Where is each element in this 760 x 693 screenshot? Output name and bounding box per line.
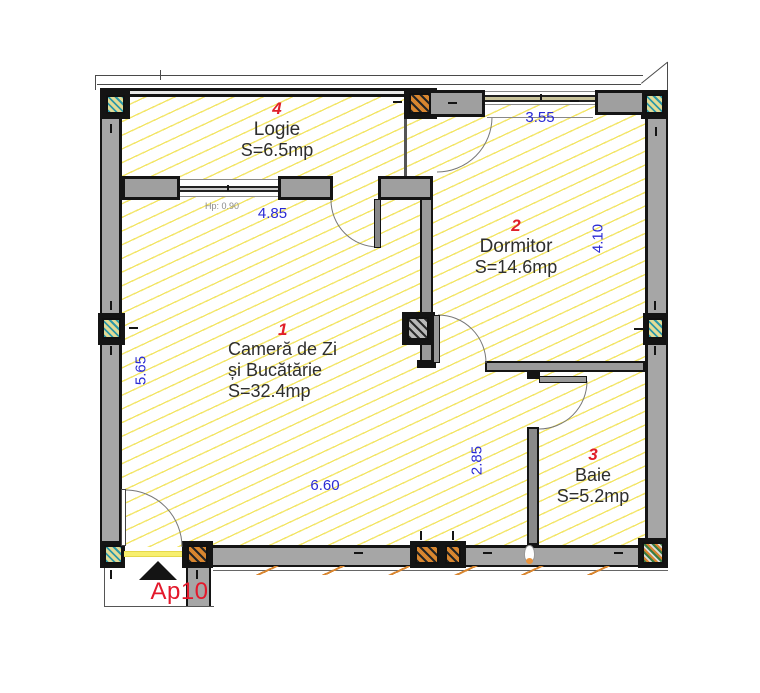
- dim-hall-depth: 2.85: [469, 431, 486, 491]
- room-logie-label: 4 Logie S=6.5mp: [187, 99, 367, 161]
- dormitor-door-leaf: [433, 315, 440, 363]
- loggia-dormitor-door-arc: [437, 117, 492, 172]
- loggia-door-arc: [331, 200, 378, 247]
- room-logie-number: 4: [187, 99, 367, 119]
- room-logie-area: S=6.5mp: [187, 140, 367, 161]
- room-living-name-2: și Bucătărie: [228, 360, 398, 381]
- room-dormitor-name: Dormitor: [426, 236, 606, 257]
- apartment-label: Ap10: [137, 578, 222, 606]
- entrance-door-arc: [125, 490, 182, 547]
- entrance-door-leaf: [121, 489, 126, 546]
- room-dormitor-area: S=14.6mp: [426, 257, 606, 278]
- room-living-number: 1: [278, 320, 287, 340]
- room-baie-name: Baie: [523, 465, 663, 486]
- room-dormitor-number: 2: [426, 216, 606, 236]
- loggia-door-leaf: [374, 199, 381, 248]
- room-living-name-1: Cameră de Zi: [228, 339, 398, 360]
- room-dormitor-label: 2 Dormitor S=14.6mp: [426, 216, 606, 278]
- baie-door-arc: [539, 381, 587, 429]
- baie-door-leaf: [539, 376, 587, 383]
- dormitor-door-arc: [438, 315, 486, 363]
- room-living-area: S=32.4mp: [228, 381, 398, 402]
- floor-plan: 4 Logie S=6.5mp 2 Dormitor S=14.6mp 1 Ca…: [0, 0, 760, 693]
- dim-logie-window-width: 4.85: [240, 205, 305, 222]
- dim-dormitor-depth: 4.10: [590, 209, 607, 269]
- dim-living-width: 6.60: [295, 477, 355, 494]
- room-logie-name: Logie: [187, 119, 367, 140]
- dim-dormitor-width: 3.55: [510, 109, 570, 126]
- room-baie-label: 3 Baie S=5.2mp: [523, 445, 663, 507]
- room-baie-area: S=5.2mp: [523, 486, 663, 507]
- room-baie-number: 3: [523, 445, 663, 465]
- dim-living-depth: 5.65: [133, 341, 150, 401]
- room-living-label: Cameră de Zi și Bucătărie S=32.4mp: [228, 339, 398, 402]
